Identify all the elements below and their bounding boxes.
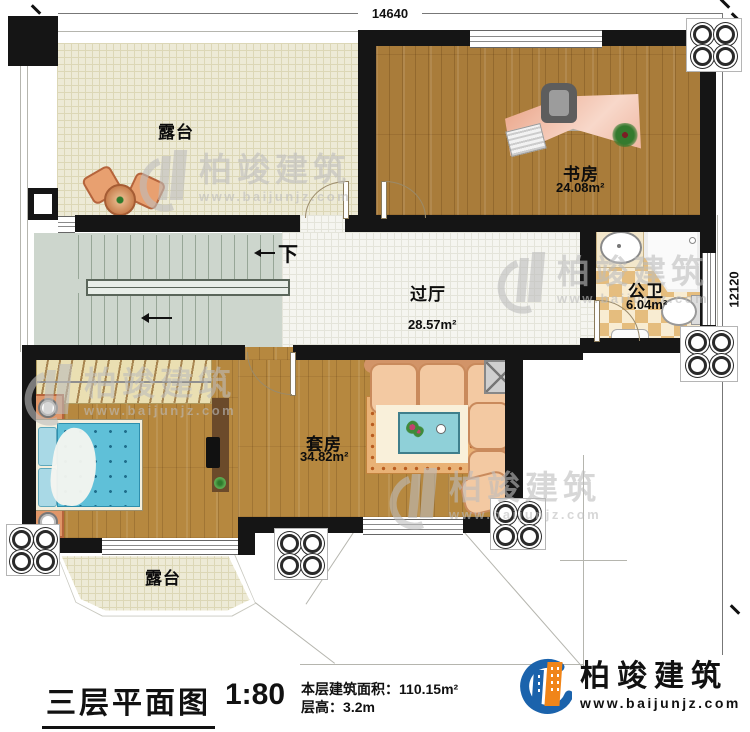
plan-scale: 1:80: [225, 678, 285, 712]
brand-logo-icon: [514, 655, 572, 717]
watermark-brand-text: 柏竣建筑: [199, 153, 351, 186]
title-block: 三层平面图 1:80 本层建筑面积：110.15m² 层高：3.2m: [42, 678, 458, 729]
brand-logo: 柏竣建筑 www.baijunjz.com: [514, 655, 741, 717]
terrace-bottom-label: 露台: [145, 564, 181, 589]
watermark-logo-icon: [140, 148, 192, 208]
column-icon: [688, 356, 707, 375]
watermark: 柏竣建筑 www.baijunjz.com: [390, 466, 601, 526]
plan-title: 三层平面图: [42, 678, 215, 729]
column-icon: [12, 552, 31, 571]
dimension-tick-top-left: [31, 4, 42, 15]
column-icon: [36, 530, 55, 549]
chimney: [8, 16, 58, 66]
floor-height-label: 层高：: [301, 699, 343, 715]
column-icon: [520, 527, 539, 546]
column-icon: [303, 556, 322, 575]
watermark-logo-icon: [498, 250, 550, 310]
watermark: 柏竣建筑 www.baijunjz.com: [498, 250, 709, 310]
stairs-down-arrow: [260, 252, 275, 254]
terrace-corner-window: [34, 194, 52, 214]
study-plant: [611, 123, 639, 147]
study-top-window: [470, 30, 602, 48]
brand-name: 柏竣建筑: [580, 662, 741, 692]
bath-area-label: 6.04m²: [626, 297, 667, 312]
shower-handle: [689, 237, 696, 244]
wall-suite-top-left: [22, 345, 245, 360]
column-icon: [712, 356, 731, 375]
column-icon: [688, 333, 707, 352]
watermark: 柏竣建筑 www.baijunjz.com: [140, 148, 351, 208]
dimension-right-label: 12120: [727, 264, 742, 316]
floor-height-value: 3.2m: [343, 699, 375, 715]
tv: [206, 437, 220, 468]
stairs-upper-flight: [78, 235, 284, 279]
suite-area-label: 34.82m²: [300, 449, 348, 464]
stairs-direction-arrow: [148, 317, 172, 319]
watermark-logo-icon: [25, 362, 77, 422]
column-icon: [280, 534, 299, 553]
terrace-table: [104, 184, 136, 216]
wall-study-left: [358, 30, 376, 232]
column-icon: [716, 25, 735, 44]
wall-suite-top-right: [293, 345, 583, 360]
column-icon: [693, 47, 712, 66]
column-icon: [12, 530, 31, 549]
floor-area-label: 本层建筑面积：: [301, 681, 399, 697]
coffee-table-dish: [436, 424, 446, 434]
stairs-lower-flight: [78, 293, 232, 347]
watermark-brand-text: 柏竣建筑: [449, 471, 601, 504]
tv-plant: [214, 477, 226, 489]
stairs-down-arrow-head: [254, 249, 261, 257]
watermark-url-text: www.baijunjz.com: [199, 189, 351, 204]
wall-terrace-bottom: [75, 215, 300, 232]
watermark-brand-text: 柏竣建筑: [84, 367, 236, 400]
watermark-url-text: www.baijunjz.com: [84, 403, 236, 418]
study-area-label: 24.08m²: [556, 180, 604, 195]
column-icon: [693, 25, 712, 44]
column-panel-right-mid: [680, 326, 738, 382]
dimension-tick-top-right-1: [720, 0, 731, 9]
column-panel-top-right: [686, 18, 742, 72]
stairs-handrail: [86, 279, 290, 296]
column-icon: [280, 556, 299, 575]
column-icon: [303, 534, 322, 553]
roof-hip-left: [253, 601, 335, 664]
stairs-direction-arrow-head: [141, 313, 149, 323]
stairs-down-label: 下: [278, 238, 299, 267]
suite-bottom-left-window: [102, 540, 238, 555]
desk-chair-seat: [549, 90, 569, 116]
bath-sink-drain: [617, 244, 621, 248]
roof-line-small: [560, 560, 627, 561]
hall-label: 过厅: [410, 280, 446, 305]
floor-area-value: 110.15m²: [399, 681, 458, 697]
coffee-table-flowers: [406, 420, 424, 438]
sofa-chaise-cushion-1: [468, 402, 510, 450]
brand-website: www.baijunjz.com: [580, 695, 741, 711]
column-icon: [712, 333, 731, 352]
column-icon: [496, 527, 515, 546]
watermark: 柏竣建筑 www.baijunjz.com: [25, 362, 236, 422]
eave-line-left-outer: [20, 66, 21, 352]
column-icon: [716, 47, 735, 66]
terrace-bottom-window: [58, 216, 75, 233]
hall-area-label: 28.57m²: [408, 317, 456, 332]
watermark-url-text: www.baijunjz.com: [449, 507, 601, 522]
dimension-top-label: 14640: [358, 6, 422, 21]
dimension-tick-bottom-right: [730, 604, 741, 615]
terrace-top-label: 露台: [158, 118, 194, 143]
floor-plan-canvas: 14640 12120: [0, 0, 750, 732]
column-icon: [36, 552, 55, 571]
watermark-logo-icon: [390, 466, 442, 526]
